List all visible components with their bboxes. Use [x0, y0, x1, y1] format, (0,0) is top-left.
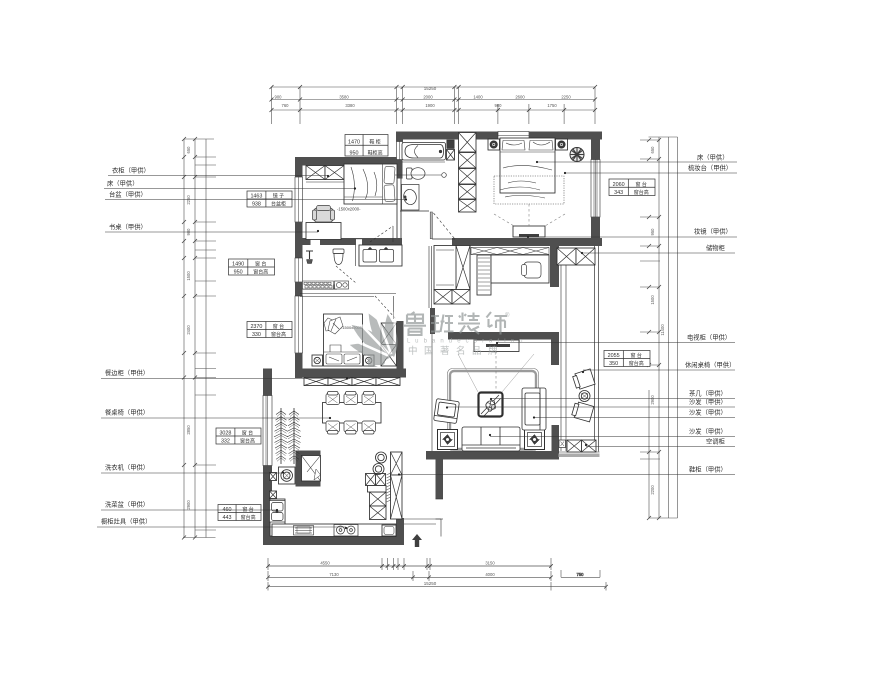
svg-text:洗菜盆（甲供）: 洗菜盆（甲供） [105, 500, 149, 509]
svg-text:床（甲供）: 床（甲供） [107, 179, 138, 188]
svg-text:7130: 7130 [329, 572, 339, 577]
svg-text:台盆柜: 台盆柜 [271, 201, 286, 208]
svg-text:储物柜: 储物柜 [706, 243, 725, 252]
svg-text:2000: 2000 [423, 95, 433, 100]
svg-text:窗 台: 窗 台 [636, 181, 647, 188]
svg-text:760: 760 [282, 103, 290, 108]
svg-text:鞋 柜: 鞋 柜 [369, 139, 380, 146]
svg-text:900: 900 [186, 228, 191, 236]
svg-text:衣柜（甲供）: 衣柜（甲供） [112, 166, 150, 175]
svg-text:2900: 2900 [650, 395, 655, 405]
svg-text:2250: 2250 [561, 95, 571, 100]
svg-text:茶几（甲供）: 茶几（甲供） [689, 389, 727, 398]
svg-text:L u b a n d e c o r a t i o n: L u b a n d e c o r a t i o n [407, 339, 524, 345]
svg-text:1463: 1463 [250, 194, 262, 200]
svg-text:3150: 3150 [485, 561, 495, 566]
svg-text:2400: 2400 [186, 325, 191, 335]
svg-text:950: 950 [234, 270, 243, 276]
svg-text:3580: 3580 [339, 95, 349, 100]
svg-text:2600: 2600 [515, 95, 525, 100]
svg-text:4000: 4000 [485, 572, 495, 577]
svg-text:2200: 2200 [650, 485, 655, 495]
svg-text:3028: 3028 [219, 431, 231, 437]
svg-text:洗衣机（甲供）: 洗衣机（甲供） [105, 463, 149, 472]
svg-text:休闲桌椅（甲供）: 休闲桌椅（甲供） [685, 360, 735, 369]
svg-text:2900: 2900 [186, 500, 191, 510]
svg-text:窗 台: 窗 台 [242, 430, 253, 437]
svg-text:窗台高: 窗台高 [253, 269, 268, 276]
svg-text:650: 650 [650, 146, 655, 154]
svg-text:2850: 2850 [186, 425, 191, 435]
svg-text:2370: 2370 [250, 324, 262, 330]
svg-text:950: 950 [650, 228, 655, 236]
svg-text:950: 950 [350, 150, 359, 156]
svg-text:橱柜灶具（甲供）: 橱柜灶具（甲供） [101, 517, 151, 526]
svg-text:妆镜（甲供）: 妆镜（甲供） [694, 227, 732, 236]
svg-text:餐边柜（甲供）: 餐边柜（甲供） [105, 368, 149, 377]
svg-text:床（甲供）: 床（甲供） [697, 153, 728, 162]
svg-text:沙发（甲供）: 沙发（甲供） [689, 408, 727, 417]
svg-text:鞋柜（甲供）: 鞋柜（甲供） [689, 465, 727, 474]
svg-text:350: 350 [609, 361, 618, 367]
svg-text:窗台高: 窗台高 [634, 189, 649, 196]
svg-text:中国著名品牌: 中国著名品牌 [408, 345, 504, 357]
svg-text:窗 台: 窗 台 [631, 352, 642, 359]
svg-text:900: 900 [495, 103, 503, 108]
svg-text:15250: 15250 [424, 581, 437, 586]
svg-text:窗 台: 窗 台 [255, 261, 266, 268]
svg-text:650: 650 [186, 146, 191, 154]
svg-text:窗 台: 窗 台 [273, 323, 284, 330]
svg-text:沙发（甲供）: 沙发（甲供） [689, 427, 727, 436]
svg-text:1400: 1400 [473, 95, 483, 100]
svg-text:900: 900 [275, 95, 283, 100]
svg-text:2060: 2060 [613, 182, 625, 188]
svg-text:空调柜: 空调柜 [706, 437, 725, 446]
svg-text:1490: 1490 [232, 262, 244, 268]
svg-text:4550: 4550 [320, 561, 330, 566]
svg-text:台盆（甲供）: 台盆（甲供） [109, 190, 147, 199]
svg-text:15250: 15250 [424, 86, 437, 91]
svg-text:3380: 3380 [345, 103, 355, 108]
svg-text:餐桌椅（甲供）: 餐桌椅（甲供） [105, 408, 149, 417]
svg-text:电视柜（甲供）: 电视柜（甲供） [687, 333, 731, 342]
svg-text:窗 台: 窗 台 [242, 506, 253, 513]
svg-text:2055: 2055 [608, 353, 620, 359]
svg-text:1470: 1470 [348, 140, 360, 146]
svg-text:窗台高: 窗台高 [629, 360, 644, 367]
svg-text:330: 330 [252, 332, 261, 338]
svg-text:1500: 1500 [186, 271, 191, 281]
svg-text:343: 343 [614, 190, 623, 196]
svg-text:窗台高: 窗台高 [271, 331, 286, 338]
svg-text:332: 332 [221, 439, 230, 445]
svg-text:443: 443 [223, 515, 232, 521]
svg-text:938: 938 [252, 202, 261, 208]
svg-text:梳妆台（甲供）: 梳妆台（甲供） [688, 163, 732, 172]
svg-text:沙发（甲供）: 沙发（甲供） [689, 397, 727, 406]
svg-text:书桌（甲供）: 书桌（甲供） [109, 222, 147, 231]
svg-text:®: ® [505, 312, 510, 319]
svg-text:1750: 1750 [547, 103, 557, 108]
svg-text:1500: 1500 [650, 295, 655, 305]
svg-text:1900: 1900 [425, 103, 435, 108]
svg-text:窗台高: 窗台高 [241, 514, 256, 521]
svg-text:-1500x2000-: -1500x2000- [337, 207, 361, 212]
svg-text:鞋柜高: 鞋柜高 [368, 149, 383, 156]
svg-text:镜 子: 镜 子 [273, 193, 284, 200]
svg-text:窗台高: 窗台高 [240, 438, 255, 445]
svg-text:11400: 11400 [660, 324, 665, 336]
svg-text:750: 750 [577, 572, 585, 577]
